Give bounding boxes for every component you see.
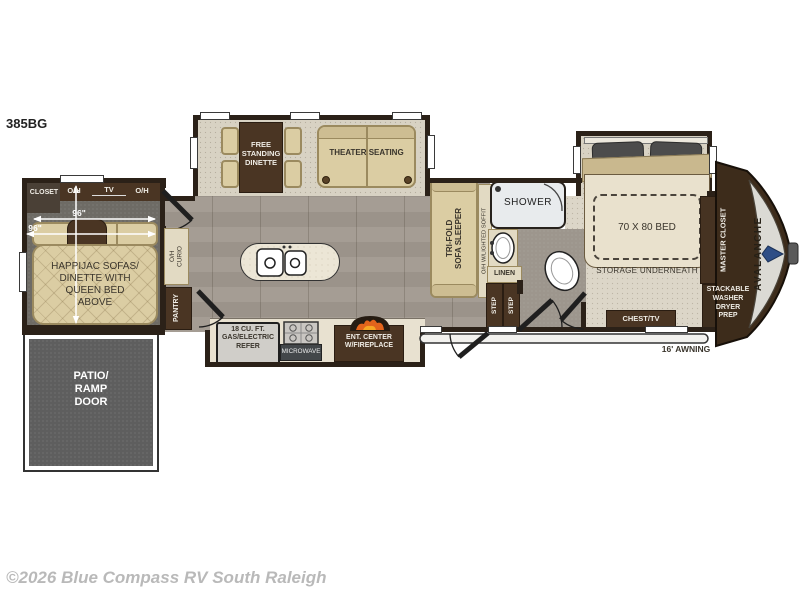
hitch-pin [788,243,798,264]
dinette-chair [284,160,302,188]
rear-tv-label: TV [92,185,126,196]
storage-label: STORAGE UNDERNEATH [584,266,710,276]
wall-main-top-right [425,178,582,183]
awning-label: 16' AWNING [656,344,716,354]
washer-dryer-label: STACKABLE WASHER DRYER PREP [702,286,754,321]
dim-96-label: 96" [66,208,92,218]
rear-oh-right-label: O/H [130,186,154,195]
patio-label: PATIO/ RAMP DOOR [25,370,157,410]
dinette-label: FREE STANDING DINETTE [237,140,285,167]
model-label: 385BG [6,116,66,132]
wall-kitchen-bottom [205,362,425,367]
happijac-label: HAPPIJAC SOFAS/ DINETTE WITH QUEEN BED A… [32,248,158,322]
wall-divider-top [160,178,166,188]
pantry-label: PANTRY [162,287,192,330]
window [60,175,104,183]
linen-label: LINEN [487,270,522,278]
wall-main-top-left [165,196,195,201]
rear-oh-left-label: O/H [62,186,86,195]
window [392,112,422,120]
shower-label: SHOWER [492,197,564,209]
window [427,135,435,169]
sofa-armrest [432,284,476,296]
window [709,146,717,174]
window [19,252,27,292]
ent-center-label: ENT. CENTER W/FIREPLACE [334,334,404,351]
rear-closet [27,183,60,213]
step-label-1: STEP [486,283,503,328]
dinette-chair [284,127,302,155]
vanity [488,229,518,267]
kitchen-island [240,243,340,281]
copyright: ©2026 Blue Compass RV South Raleigh [6,568,406,588]
window [190,137,198,169]
window [420,326,442,333]
patio-top-wall [22,328,165,335]
step-label-2: STEP [503,283,520,328]
theater-cupholder [322,176,330,184]
soffit-label: O/H W/LIGHTED SOFFIT [478,184,492,298]
theater-label: THEATER SEATING [318,148,415,158]
window [645,326,688,333]
entry-door [450,333,488,357]
microwave-label: MICROWAVE [280,348,322,356]
awning-bar [420,334,708,343]
sofa-table-hump [67,219,107,246]
bed-label: 70 X 80 BED [593,222,701,234]
rear-closet-label: CLOSET [23,189,65,197]
master-closet-label: MASTER CLOSET [700,196,748,284]
dim-96-label-2: 96" [22,223,48,233]
wall-bedroom-entry [581,302,586,330]
sofa-cushion-seam [116,223,118,245]
chest-tv-label: CHEST/TV [606,314,676,323]
theater-cupholder [404,176,412,184]
floorplan-page: 385BG FREE STANDING DINETTE THEATER SEAT… [0,0,800,600]
refrigerator-label: 18 CU. FT. GAS/ELECTRIC REFER [216,326,280,351]
window [573,146,581,174]
window [290,112,320,120]
curio-cabinet: O/H CURIO [164,228,189,285]
brand-logo-text: AVALANCHE [750,204,767,304]
window [200,112,230,120]
trifold-sofa-label: TRI-FOLD SOFA SLEEPER [430,192,478,284]
wall-kitchen-right [420,332,425,367]
